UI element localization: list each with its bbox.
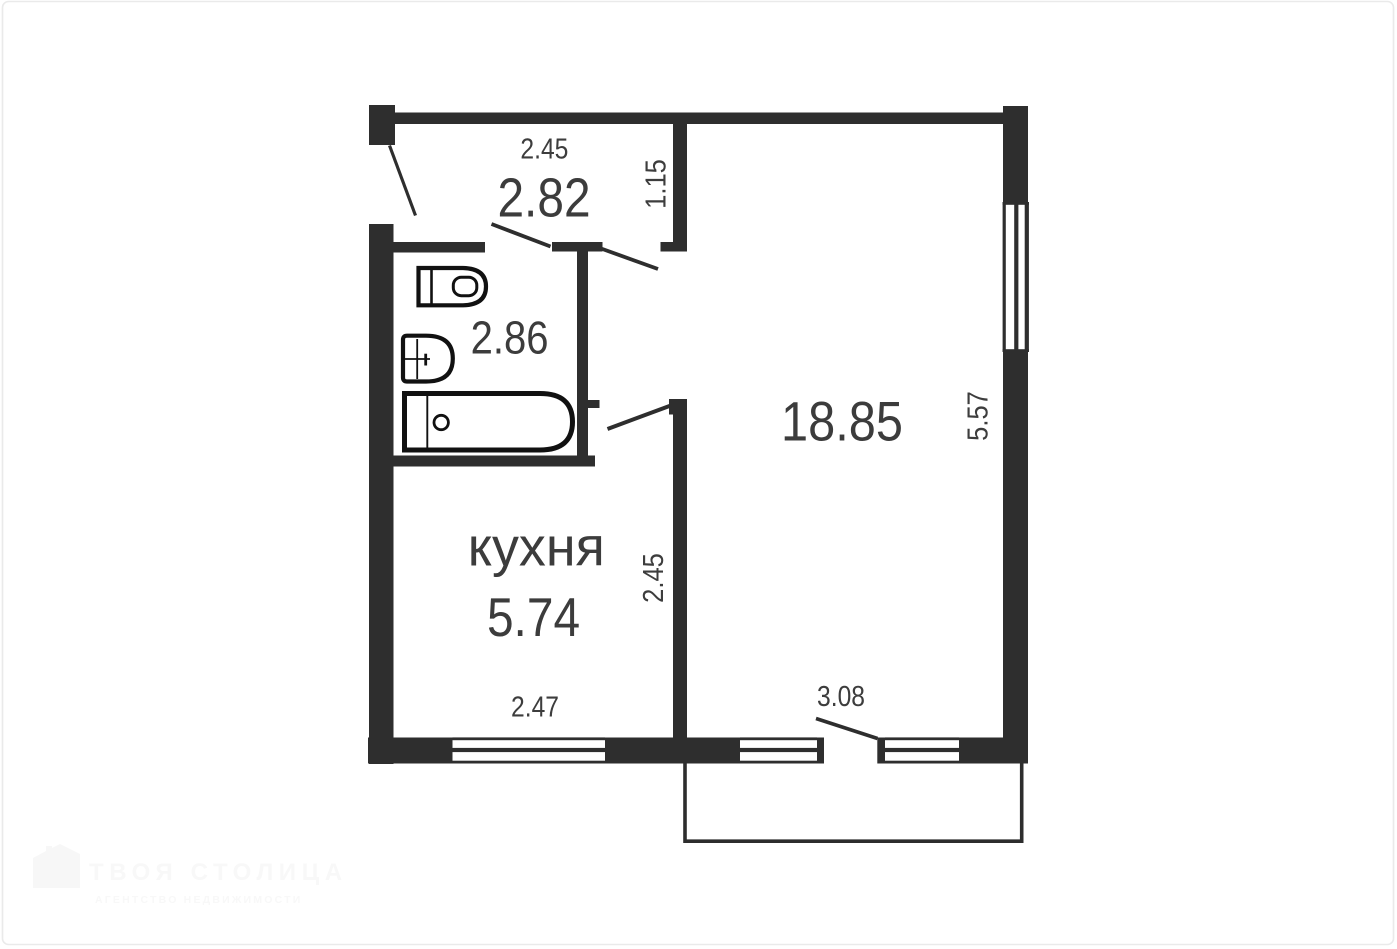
svg-text:АГЕНТСТВО НЕДВИЖИМОСТИ: АГЕНТСТВО НЕДВИЖИМОСТИ xyxy=(95,894,303,906)
svg-text:5.57: 5.57 xyxy=(961,391,994,441)
svg-text:5.74: 5.74 xyxy=(487,586,580,648)
svg-text:ТВОЯ СТОЛИЦА: ТВОЯ СТОЛИЦА xyxy=(89,859,348,886)
svg-text:3.08: 3.08 xyxy=(817,680,865,712)
svg-text:кухня: кухня xyxy=(468,516,605,578)
svg-text:1.15: 1.15 xyxy=(639,159,672,209)
svg-text:2.47: 2.47 xyxy=(511,691,559,723)
svg-text:18.85: 18.85 xyxy=(781,390,903,453)
svg-text:2.86: 2.86 xyxy=(471,313,549,364)
svg-text:2.45: 2.45 xyxy=(636,553,669,603)
svg-text:2.82: 2.82 xyxy=(497,166,590,228)
svg-text:2.45: 2.45 xyxy=(520,133,568,165)
